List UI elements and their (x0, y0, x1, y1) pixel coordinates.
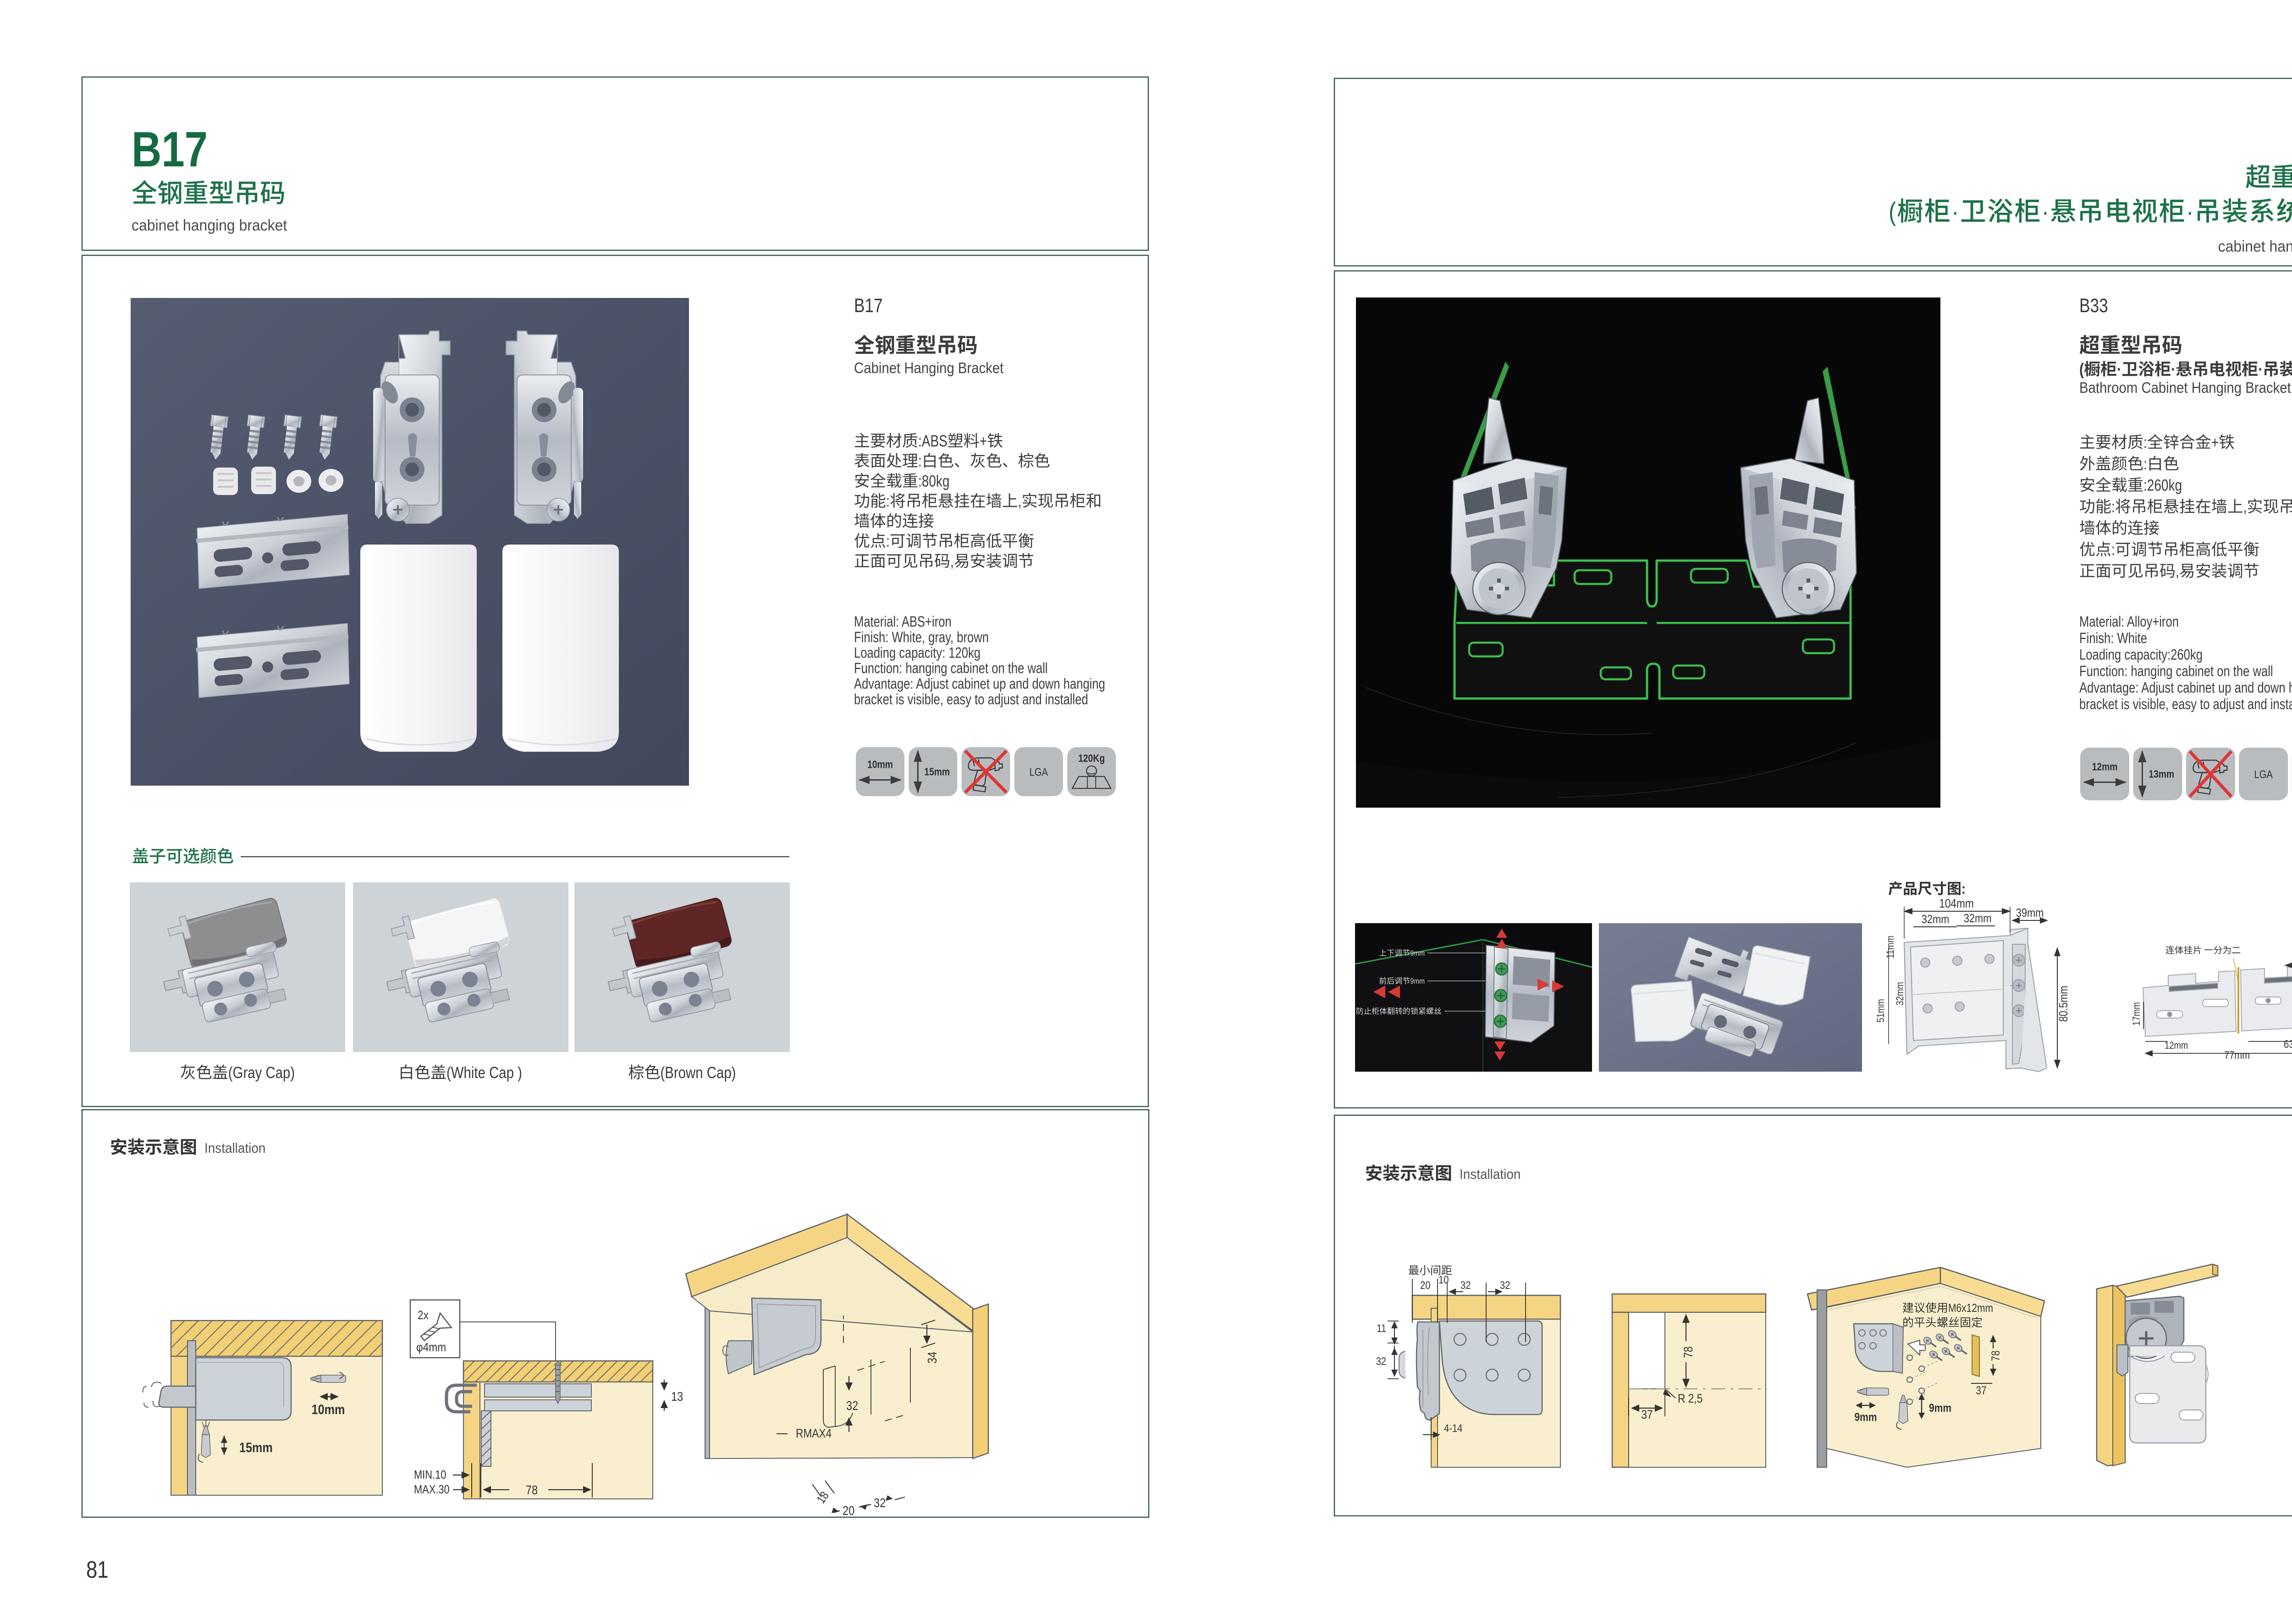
svg-text:20: 20 (843, 1504, 854, 1518)
svg-text:LGA: LGA (2254, 768, 2273, 781)
svg-text::: : (2111, 497, 2115, 516)
svg-text:37: 37 (1641, 1408, 1653, 1421)
svg-text::: : (2143, 455, 2147, 473)
svg-text:Advantage: Adjust cabinet up a: Advantage: Adjust cabinet up and down ha… (854, 676, 1105, 692)
svg-text:32: 32 (1376, 1355, 1386, 1367)
svg-text:Material: ABS+iron: Material: ABS+iron (854, 614, 952, 630)
svg-text:(White Cap ): (White Cap ) (446, 1064, 522, 1082)
svg-text:+: + (980, 432, 987, 450)
svg-text:78: 78 (526, 1483, 538, 1497)
svg-text:20: 20 (1420, 1279, 1430, 1291)
svg-text:78: 78 (1681, 1346, 1695, 1358)
svg-text:bracket is visible, easy to ad: bracket is visible, easy to adjust and i… (2079, 696, 2292, 712)
svg-text::: : (2143, 433, 2147, 451)
svg-text:Cabinet Hanging Bracket: Cabinet Hanging Bracket (854, 359, 1004, 376)
svg-text:(: ( (2079, 361, 2084, 379)
svg-text:15mm: 15mm (924, 766, 950, 778)
svg-text:Bathroom Cabinet Hanging Brack: Bathroom Cabinet Hanging Bracket (2079, 379, 2291, 396)
svg-text:Installation: Installation (1460, 1167, 1521, 1183)
svg-text:78: 78 (1989, 1350, 2002, 1361)
svg-text:11mm: 11mm (1885, 936, 1896, 958)
svg-text:R 2,5: R 2,5 (1678, 1392, 1702, 1405)
svg-text:·: · (2171, 361, 2176, 379)
svg-text:9mm: 9mm (1410, 949, 1425, 958)
svg-text:77mm: 77mm (2224, 1049, 2250, 1061)
svg-text:Finish: White: Finish: White (2079, 630, 2147, 646)
svg-text:LGA: LGA (1030, 766, 1048, 778)
svg-text::: : (1961, 881, 1966, 897)
svg-text:2x: 2x (418, 1308, 429, 1322)
svg-text:10mm: 10mm (312, 1402, 345, 1417)
svg-text:32: 32 (1460, 1279, 1471, 1291)
svg-text:bracket is visible, easy to ad: bracket is visible, easy to adjust and i… (854, 692, 1088, 708)
svg-text::: : (886, 532, 890, 550)
svg-text:13: 13 (671, 1390, 683, 1404)
svg-text:·: · (2117, 361, 2121, 379)
svg-text::ABS: :ABS (918, 432, 948, 450)
svg-text:Material: Alloy+iron: Material: Alloy+iron (2079, 614, 2179, 630)
svg-text:10: 10 (1438, 1273, 1449, 1286)
svg-text:120Kg: 120Kg (1078, 753, 1105, 765)
svg-text:M6x12mm: M6x12mm (1948, 1301, 1993, 1314)
svg-text:·: · (2042, 197, 2049, 226)
svg-text:·: · (2258, 361, 2263, 379)
svg-text:104mm: 104mm (1939, 897, 1974, 910)
svg-text:4-14: 4-14 (1444, 1422, 1462, 1434)
svg-text:φ4mm: φ4mm (416, 1340, 446, 1354)
svg-text:,: , (1018, 492, 1022, 510)
svg-text:32mm: 32mm (1895, 982, 1906, 1005)
svg-text:32mm: 32mm (1922, 913, 1950, 926)
svg-text:B17: B17 (132, 121, 208, 177)
svg-text:Loading capacity: 120kg: Loading capacity: 120kg (854, 645, 981, 661)
svg-text:Loading capacity:260kg: Loading capacity:260kg (2079, 647, 2203, 663)
svg-text:·: · (2186, 197, 2193, 226)
svg-text:13mm: 13mm (2149, 769, 2174, 780)
svg-text:(: ( (1889, 197, 1896, 226)
svg-text:12mm: 12mm (2092, 761, 2118, 773)
svg-text:,: , (2176, 562, 2179, 580)
svg-text:Function: hanging cabinet on t: Function: hanging cabinet on the wall (2079, 663, 2273, 679)
svg-text:32: 32 (874, 1496, 886, 1510)
svg-text:cabinet hanging bracket: cabinet hanging bracket (132, 216, 287, 234)
svg-text:RMAX4: RMAX4 (796, 1426, 832, 1440)
svg-text:cabinet hanging bracket: cabinet hanging bracket (2218, 237, 2292, 255)
svg-text:63mm: 63mm (2284, 1038, 2292, 1050)
svg-text:12mm: 12mm (2165, 1040, 2188, 1051)
svg-text:80.5mm: 80.5mm (2057, 986, 2070, 1022)
svg-text:39mm: 39mm (2016, 906, 2044, 919)
svg-text:Installation: Installation (204, 1140, 265, 1156)
svg-text:,: , (2243, 497, 2247, 516)
svg-text:32: 32 (846, 1399, 858, 1413)
svg-text:(Brown Cap): (Brown Cap) (661, 1064, 736, 1082)
svg-text:37: 37 (1976, 1384, 1986, 1397)
svg-text:17mm: 17mm (2132, 1002, 2143, 1025)
svg-text:MAX.30: MAX.30 (414, 1483, 450, 1496)
svg-text:Finish: White, gray, brown: Finish: White, gray, brown (854, 629, 989, 645)
svg-text::260kg: :260kg (2143, 476, 2182, 495)
svg-text:,: , (950, 552, 954, 570)
svg-text:9mm: 9mm (1929, 1401, 1951, 1414)
svg-text:·: · (1951, 197, 1959, 226)
svg-text:81: 81 (86, 1557, 109, 1583)
svg-text:B33: B33 (2079, 295, 2108, 317)
svg-text:10mm: 10mm (867, 759, 893, 771)
svg-text:34: 34 (926, 1352, 939, 1364)
svg-text:11: 11 (1377, 1322, 1386, 1334)
svg-text:32mm: 32mm (1964, 912, 1992, 925)
svg-text:51mm: 51mm (1876, 999, 1887, 1022)
svg-text:+: + (2211, 433, 2219, 451)
svg-text::: : (918, 452, 922, 470)
svg-text:(Gray Cap): (Gray Cap) (228, 1064, 295, 1082)
svg-text:15mm: 15mm (239, 1440, 273, 1455)
svg-text::: : (2111, 540, 2115, 559)
svg-text:Advantage: Adjust cabinet up a: Advantage: Adjust cabinet up and down ha… (2079, 680, 2292, 696)
svg-text::: : (886, 492, 890, 510)
svg-text:9mm: 9mm (1855, 1410, 1877, 1423)
svg-text:MIN.10: MIN.10 (414, 1468, 446, 1481)
svg-text:32: 32 (1500, 1279, 1510, 1291)
svg-text:Function: hanging cabinet on t: Function: hanging cabinet on the wall (854, 661, 1048, 677)
svg-text:B17: B17 (854, 295, 883, 317)
svg-text:9mm: 9mm (1410, 977, 1425, 985)
svg-text::80kg: :80kg (918, 472, 949, 490)
